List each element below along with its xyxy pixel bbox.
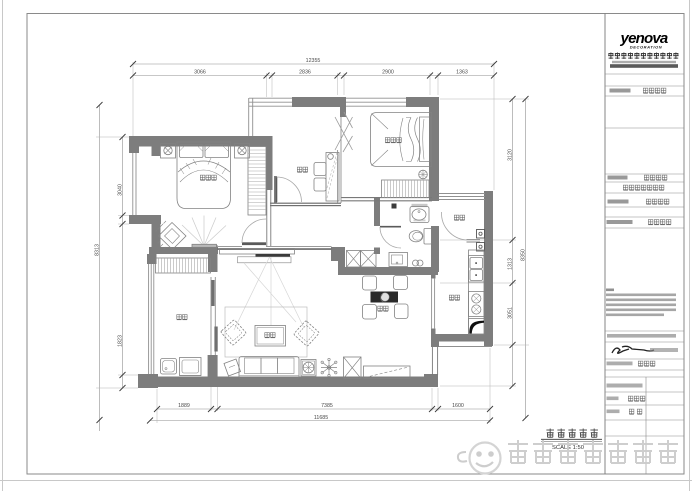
svg-text:1823: 1823 bbox=[118, 335, 124, 347]
svg-text:7385: 7385 bbox=[321, 403, 333, 409]
svg-text:1313: 1313 bbox=[508, 258, 514, 270]
svg-text:2900: 2900 bbox=[382, 70, 394, 76]
svg-text:12355: 12355 bbox=[306, 58, 321, 64]
svg-text:2836: 2836 bbox=[299, 70, 311, 76]
svg-text:DECORATION: DECORATION bbox=[630, 45, 663, 50]
svg-text:3040: 3040 bbox=[118, 184, 124, 196]
svg-text:8313: 8313 bbox=[95, 244, 101, 256]
svg-text:3120: 3120 bbox=[508, 149, 514, 161]
svg-text:1363: 1363 bbox=[456, 70, 468, 76]
svg-text:8350: 8350 bbox=[521, 249, 527, 261]
svg-text:3051: 3051 bbox=[508, 307, 514, 319]
svg-text:3066: 3066 bbox=[194, 70, 206, 76]
svg-text:11685: 11685 bbox=[314, 415, 328, 421]
svg-text:1889: 1889 bbox=[178, 403, 190, 409]
svg-text:1600: 1600 bbox=[452, 403, 464, 409]
